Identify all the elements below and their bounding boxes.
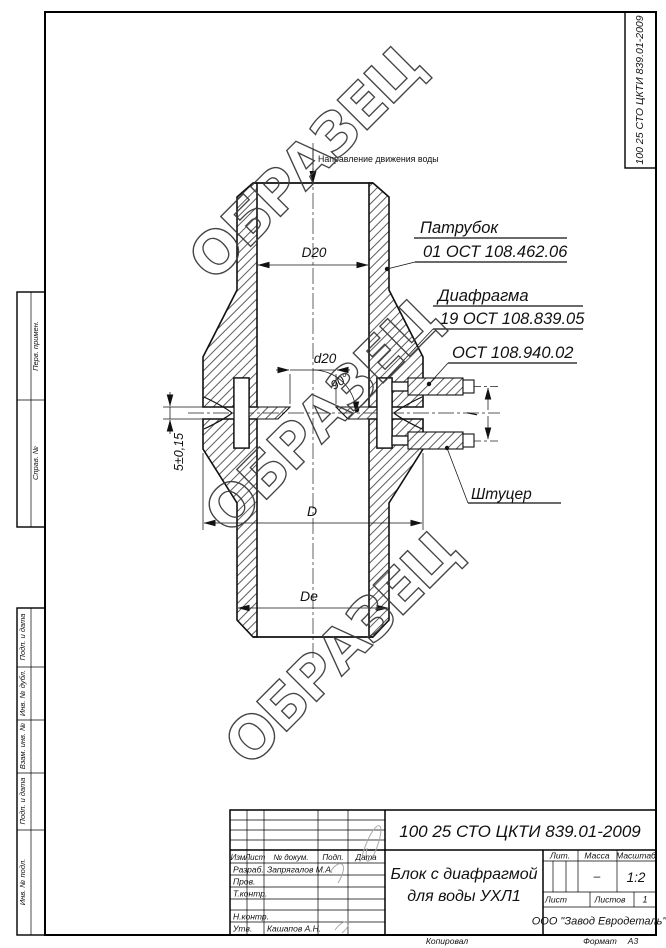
sheet-label: Лист — [544, 895, 567, 905]
row-razrab-label: Разраб. — [233, 865, 264, 875]
margin-field-podp-data-2: Подп. и дата — [18, 778, 27, 825]
row-nkontr-label: Н.контр. — [233, 912, 269, 922]
mass-value: – — [594, 869, 601, 883]
callout-patrubok: Патрубок 01 ОСТ 108.462.06 — [385, 219, 568, 271]
footer-format-value: А3 — [627, 936, 639, 946]
svg-text:l: l — [464, 412, 480, 416]
margin-field-inv-podl: Инв. № подл. — [18, 859, 27, 906]
callout-shtutser: Штуцер — [445, 446, 561, 503]
col-ndokum: № докум. — [273, 853, 308, 862]
mass-label: Масса — [584, 851, 609, 861]
margin-fields-bottom: Подп. и дата Инв. № дубл. Взам. инв. № П… — [17, 608, 45, 935]
col-data: Дата — [354, 853, 377, 862]
svg-text:19 ОСТ 108.839.05: 19 ОСТ 108.839.05 — [440, 310, 585, 328]
lit-label: Лит. — [549, 851, 570, 861]
col-izm: Изм — [231, 853, 246, 862]
footer-format-label: Формат — [583, 936, 617, 946]
part-title-line2: для воды УХЛ1 — [407, 888, 521, 905]
col-list: Лист — [244, 853, 266, 862]
margin-field-perv-primen: Перв. примен. — [31, 321, 40, 371]
left-clamp-bolt — [234, 378, 249, 448]
svg-text:De: De — [300, 588, 318, 604]
margin-fields-top: Перв. примен. Справ. № — [17, 292, 45, 527]
margin-field-vzam-inv: Взам. инв. № — [18, 723, 27, 769]
row-prov-label: Пров. — [233, 877, 255, 887]
scale-value: 1:2 — [627, 870, 646, 885]
drawing-sheet: 100 25 СТО ЦКТИ 839.01-2009 Перв. примен… — [0, 0, 666, 948]
footer-copied: Копировал — [426, 936, 468, 946]
title-block-doc-number: 100 25 СТО ЦКТИ 839.01-2009 — [399, 822, 641, 841]
row-utv-name: Кашапов А.Н. — [267, 924, 321, 934]
row-utv-label: Утв. — [232, 924, 252, 934]
svg-text:ОСТ 108.940.02: ОСТ 108.940.02 — [452, 344, 573, 362]
col-podp: Подп. — [322, 853, 343, 862]
svg-text:5±0,15: 5±0,15 — [172, 433, 186, 471]
company-name: ООО "Завод Евродеталь" — [532, 916, 666, 928]
margin-field-sprav-no: Справ. № — [31, 446, 40, 480]
svg-text:Патрубок: Патрубок — [420, 219, 499, 237]
margin-field-podp-data-1: Подп. и дата — [18, 614, 27, 661]
svg-text:Штуцер: Штуцер — [471, 486, 532, 503]
sheets-value: 1 — [642, 895, 647, 905]
title-block: 100 25 СТО ЦКТИ 839.01-2009 Изм Лист № д… — [230, 810, 666, 935]
scale-label: Масштаб — [616, 851, 657, 861]
row-razrab-name: Запрягалов М.А. — [267, 865, 333, 875]
svg-text:Диафрагма: Диафрагма — [436, 287, 529, 305]
dimension-l: l — [464, 388, 488, 439]
engineering-drawing-canvas: 100 25 СТО ЦКТИ 839.01-2009 Перв. примен… — [0, 0, 666, 948]
margin-field-inv-dubl: Инв. № дубл. — [18, 670, 27, 716]
corner-stamp-text: 100 25 СТО ЦКТИ 839.01-2009 — [634, 15, 646, 164]
part-title-line1: Блок с диафрагмой — [390, 866, 537, 883]
row-tkontr-label: Т.контр. — [233, 889, 267, 899]
signature-scribble-2 — [335, 922, 349, 933]
sheets-label: Листов — [594, 895, 627, 905]
svg-text:D: D — [307, 503, 317, 519]
svg-text:D20: D20 — [302, 245, 327, 260]
svg-text:01 ОСТ 108.462.06: 01 ОСТ 108.462.06 — [423, 243, 568, 261]
